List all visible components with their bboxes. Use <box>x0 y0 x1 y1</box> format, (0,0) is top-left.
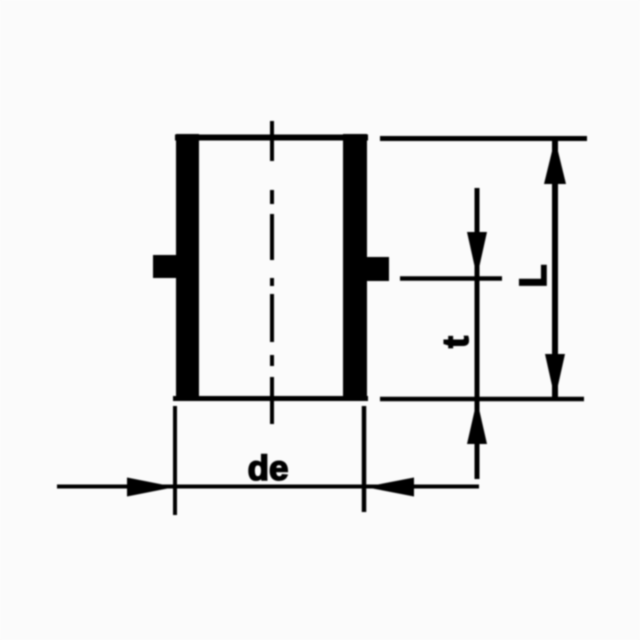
svg-text:L: L <box>513 264 555 287</box>
svg-text:de: de <box>248 449 289 488</box>
svg-text:t: t <box>435 336 476 348</box>
